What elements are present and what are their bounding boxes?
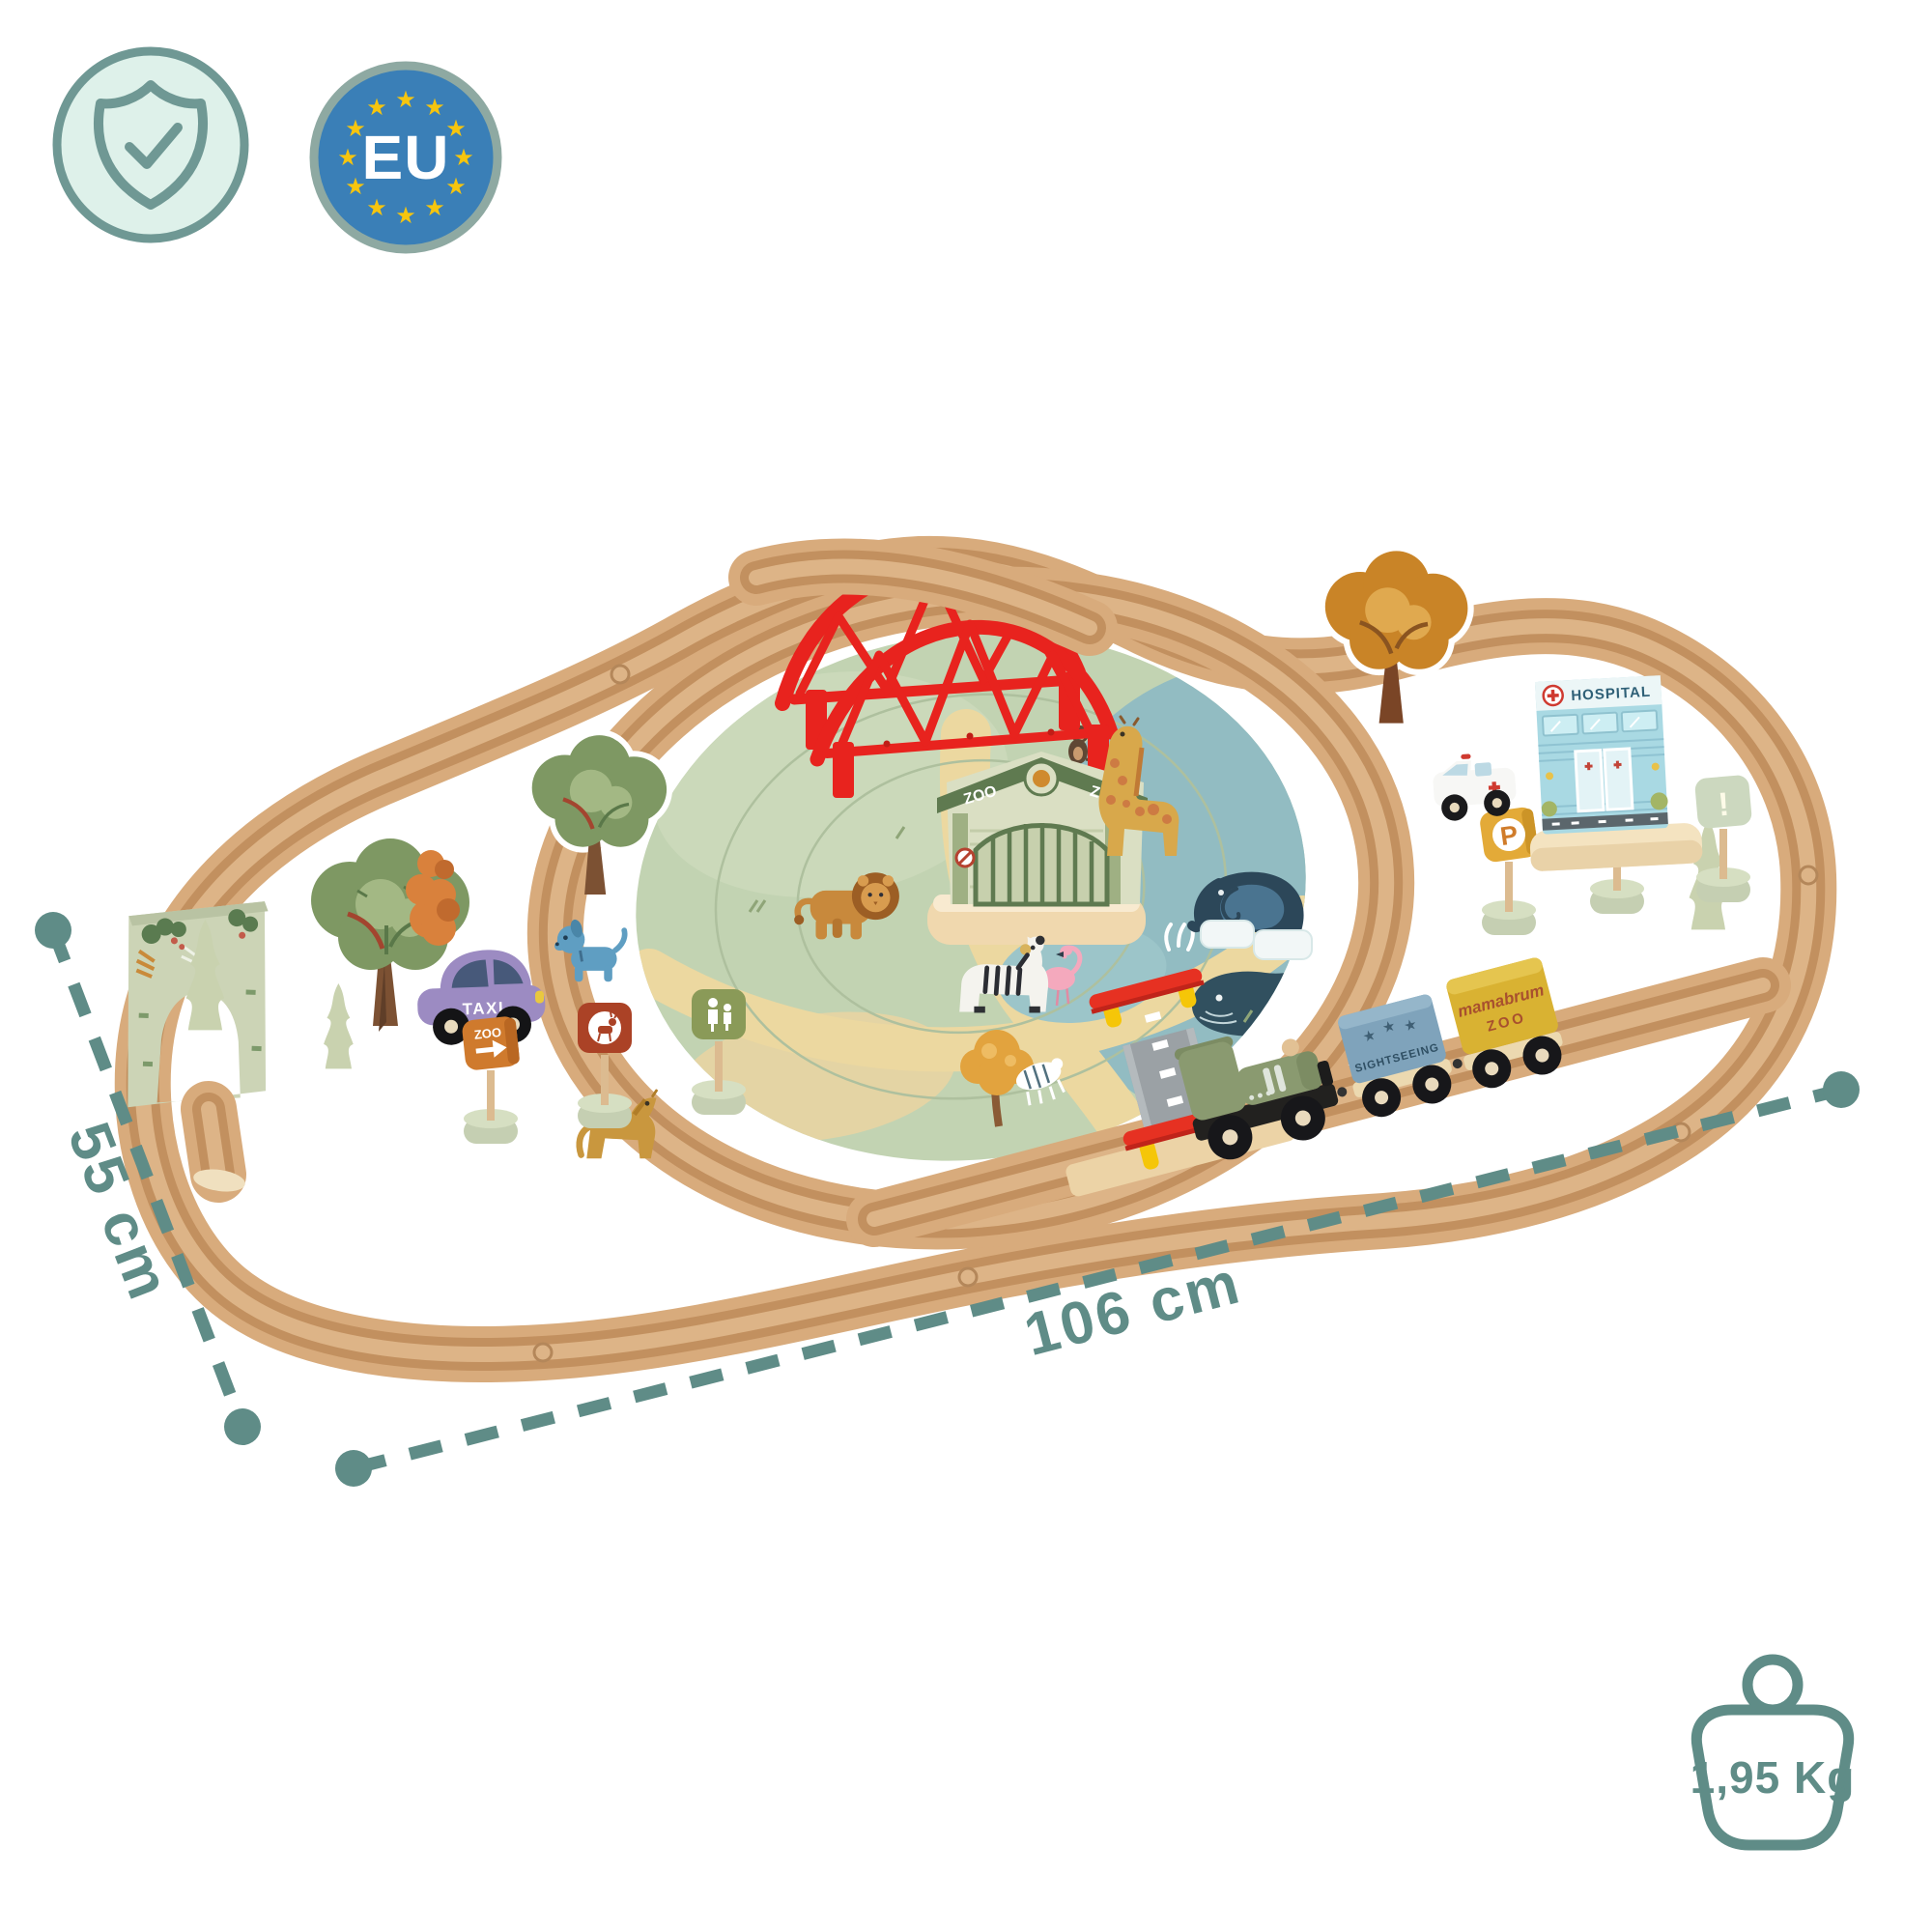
headlight <box>535 990 544 1003</box>
eu-star-icon: ★ <box>366 195 387 221</box>
tunnel-exit-track <box>192 1109 247 1195</box>
hospital-building: HOSPITAL <box>1521 673 1703 871</box>
sign-zoo-label: ZOO <box>473 1025 502 1042</box>
dimension-endpoint-dot <box>35 912 71 949</box>
eu-label: EU <box>362 123 450 192</box>
weight-badge: 1,95 Kg <box>1690 1660 1856 1845</box>
autumn-tree <box>1320 545 1474 724</box>
dimension-endpoint-dot <box>1823 1071 1860 1108</box>
eu-star-icon: ★ <box>337 145 358 171</box>
eu-star-icon: ★ <box>453 145 474 171</box>
eu-badge: ★ ★ ★ ★ ★ ★ ★ ★ ★ ★ ★ ★ EU <box>314 66 497 249</box>
eu-star-icon: ★ <box>424 95 445 121</box>
quality-badge <box>57 51 244 239</box>
weight-kettlebell-icon <box>1747 1660 1798 1710</box>
product-image: ZOO ZOO <box>0 0 1932 1932</box>
eu-star-icon: ★ <box>395 87 416 113</box>
eu-star-icon: ★ <box>424 195 445 221</box>
dimension-endpoint-dot <box>224 1408 261 1445</box>
weight-label: 1,95 Kg <box>1690 1752 1856 1803</box>
sign-zoo: ZOO <box>461 1015 520 1144</box>
sign-parking: P <box>1479 806 1540 935</box>
eu-star-icon: ★ <box>395 203 416 229</box>
pale-fir-tree <box>324 983 354 1068</box>
lion-medallion-icon <box>1033 770 1050 787</box>
dimension-endpoint-dot <box>335 1450 372 1487</box>
eu-star-icon: ★ <box>366 95 387 121</box>
ambulance <box>1432 751 1519 822</box>
wooden-train-set-scene: ZOO ZOO <box>0 0 1932 1932</box>
